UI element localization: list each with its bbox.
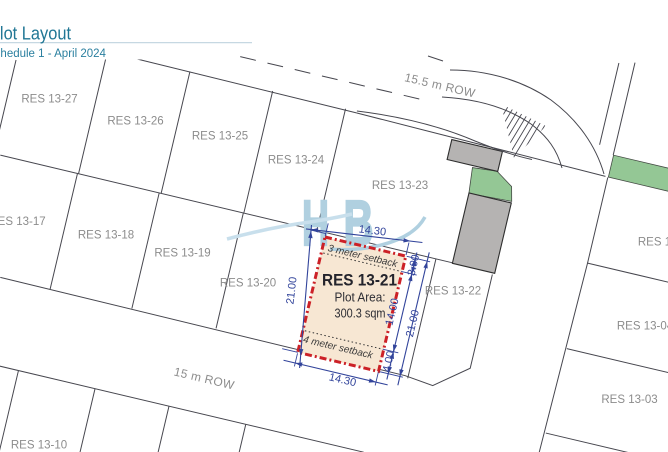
svg-text:RES 13-21: RES 13-21: [322, 271, 397, 290]
svg-text:RES 13-24: RES 13-24: [268, 155, 325, 167]
svg-text:RES 13-10: RES 13-10: [11, 440, 67, 452]
svg-text:RES 13-17: RES 13-17: [0, 216, 46, 228]
svg-text:Plot Layout: Plot Layout: [0, 24, 71, 44]
svg-text:RES 13-23: RES 13-23: [372, 180, 428, 192]
svg-text:RES 13-25: RES 13-25: [192, 131, 248, 143]
svg-text:300.3 sqm: 300.3 sqm: [335, 307, 386, 321]
svg-text:Schedule 1 - April 2024: Schedule 1 - April 2024: [0, 48, 107, 60]
svg-text:RES 13-19: RES 13-19: [154, 248, 210, 260]
svg-text:RES 13-05: RES 13-05: [638, 237, 668, 249]
svg-text:Plot Area:: Plot Area:: [335, 291, 386, 305]
svg-text:RES 13-18: RES 13-18: [78, 230, 134, 242]
svg-text:RES 13-04: RES 13-04: [617, 321, 668, 333]
svg-text:RES 13-27: RES 13-27: [21, 94, 77, 106]
svg-text:RES 13-03: RES 13-03: [601, 394, 657, 406]
svg-text:RES 13-20: RES 13-20: [220, 278, 276, 290]
svg-text:RES 13-22: RES 13-22: [425, 286, 481, 298]
svg-text:RES 13-26: RES 13-26: [107, 116, 163, 128]
